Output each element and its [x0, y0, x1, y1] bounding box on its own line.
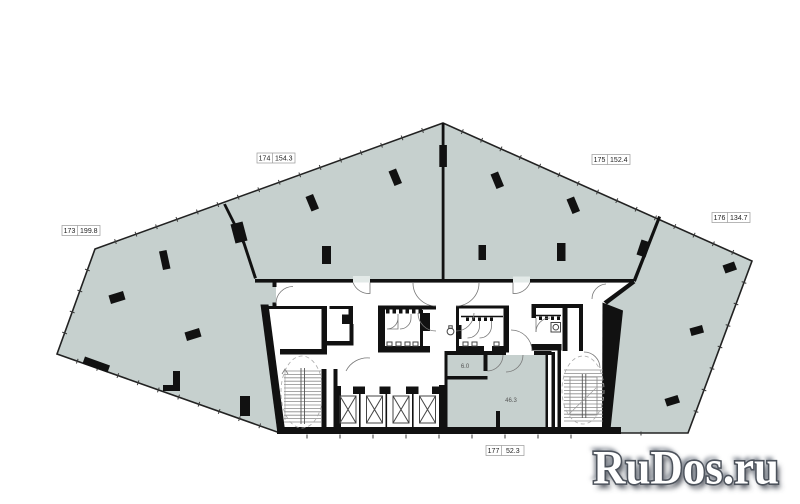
svg-text:52.3: 52.3 [506, 448, 520, 455]
svg-text:175: 175 [594, 157, 606, 164]
svg-text:154.3: 154.3 [275, 156, 293, 163]
svg-text:176: 176 [714, 215, 726, 222]
svg-text:134.7: 134.7 [730, 215, 748, 222]
svg-text:177: 177 [488, 448, 500, 455]
svg-text:173: 173 [64, 228, 76, 235]
svg-text:174: 174 [259, 156, 271, 163]
svg-text:6.0: 6.0 [461, 364, 470, 370]
svg-text:199.8: 199.8 [80, 228, 98, 235]
svg-text:RuDos.ru: RuDos.ru [593, 442, 779, 495]
svg-text:46.3: 46.3 [505, 398, 517, 404]
svg-text:152.4: 152.4 [610, 157, 628, 164]
